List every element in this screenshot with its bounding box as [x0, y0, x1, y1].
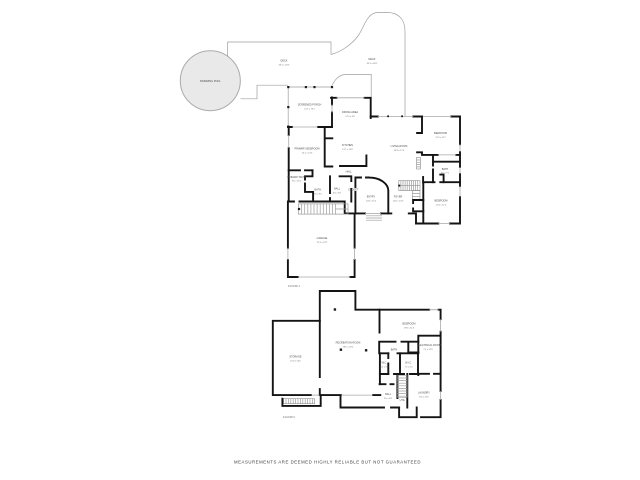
- svg-text:12'1 x 13'6: 12'1 x 13'6: [342, 149, 353, 151]
- svg-text:8'0 x 14'0: 8'0 x 14'0: [419, 396, 429, 398]
- svg-text:14'1 x 13'2: 14'1 x 13'2: [304, 109, 315, 111]
- svg-text:HALL: HALL: [334, 188, 341, 191]
- svg-text:5'0 x 5'0: 5'0 x 5'0: [380, 366, 389, 368]
- svg-text:LIVING ROOM: LIVING ROOM: [391, 145, 408, 148]
- svg-text:W.C.: W.C.: [382, 362, 388, 365]
- svg-text:18'4 x 17'6: 18'4 x 17'6: [394, 150, 405, 152]
- svg-text:BATH: BATH: [315, 189, 322, 192]
- svg-text:DECK: DECK: [369, 58, 376, 61]
- svg-text:12'4 x 11'2: 12'4 x 11'2: [435, 137, 446, 139]
- svg-text:22'4 x 22'2: 22'4 x 22'2: [317, 242, 328, 244]
- svg-text:PRIMARY BEDROOM: PRIMARY BEDROOM: [295, 148, 320, 151]
- svg-text:19'0 x 11'6: 19'0 x 11'6: [404, 328, 415, 330]
- svg-text:BATH: BATH: [391, 348, 398, 351]
- svg-text:6'0 x 7'0: 6'0 x 7'0: [441, 173, 450, 175]
- svg-text:13'2 x 11'4: 13'2 x 11'4: [436, 205, 447, 207]
- svg-text:FLOOR 2: FLOOR 2: [283, 415, 295, 419]
- svg-text:PRIMARY BATH: PRIMARY BATH: [287, 176, 306, 179]
- svg-text:UTIL: UTIL: [400, 399, 406, 402]
- svg-text:HALL: HALL: [385, 393, 392, 396]
- svg-text:BATH: BATH: [442, 168, 449, 171]
- svg-text:SWIMMING POOL: SWIMMING POOL: [200, 80, 222, 83]
- svg-text:7'0 x 12'0: 7'0 x 12'0: [423, 349, 433, 351]
- svg-text:5'0 x 9'0: 5'0 x 9'0: [384, 398, 393, 400]
- svg-text:56'1 x 20'3: 56'1 x 20'3: [279, 65, 290, 67]
- svg-text:W.I.C.: W.I.C.: [405, 362, 412, 365]
- svg-text:5'0 x 8'0: 5'0 x 8'0: [314, 193, 323, 195]
- svg-text:6'0 x 8'0: 6'0 x 8'0: [333, 192, 342, 194]
- svg-text:30'1 x 48'2: 30'1 x 48'2: [367, 63, 378, 65]
- svg-text:STORAGE: STORAGE: [289, 356, 302, 359]
- svg-text:15'0 x 24'0: 15'0 x 24'0: [290, 361, 301, 363]
- svg-text:GARAGE: GARAGE: [317, 237, 328, 240]
- svg-text:FOYER: FOYER: [394, 196, 403, 199]
- svg-text:BEDROOM: BEDROOM: [403, 323, 416, 326]
- svg-text:28'0 x 26'0: 28'0 x 26'0: [343, 347, 354, 349]
- svg-text:CLOSET: CLOSET: [348, 189, 358, 192]
- svg-text:ELECTRICAL ROOM: ELECTRICAL ROOM: [417, 344, 441, 347]
- svg-text:10'0 x 11'0: 10'0 x 11'0: [366, 201, 377, 203]
- svg-text:14'1 x 13'0: 14'1 x 13'0: [302, 153, 313, 155]
- svg-text:12'4 x 9'8: 12'4 x 9'8: [345, 116, 355, 118]
- svg-text:BEDROOM: BEDROOM: [435, 200, 448, 203]
- svg-text:HALL: HALL: [346, 171, 353, 174]
- svg-text:MEASUREMENTS ARE DEEMED HIGHLY: MEASUREMENTS ARE DEEMED HIGHLY RELIABLE …: [234, 460, 421, 465]
- svg-text:BEDROOM: BEDROOM: [434, 132, 447, 135]
- svg-text:9'0 x 11'0: 9'0 x 11'0: [292, 181, 302, 183]
- svg-text:10'0 x 10'0: 10'0 x 10'0: [393, 201, 404, 203]
- svg-text:KITCHEN: KITCHEN: [342, 144, 353, 147]
- svg-text:DINING AREA: DINING AREA: [342, 111, 358, 114]
- svg-text:LAUNDRY: LAUNDRY: [418, 392, 430, 395]
- svg-text:RECREATION ROOM: RECREATION ROOM: [336, 342, 361, 345]
- svg-text:7'0 x 5'0: 7'0 x 5'0: [404, 366, 413, 368]
- svg-text:FLOOR 1: FLOOR 1: [288, 284, 300, 288]
- svg-text:DECK: DECK: [281, 60, 288, 63]
- svg-text:ENTRY: ENTRY: [367, 196, 376, 199]
- svg-text:SCREENED PORCH: SCREENED PORCH: [298, 104, 322, 107]
